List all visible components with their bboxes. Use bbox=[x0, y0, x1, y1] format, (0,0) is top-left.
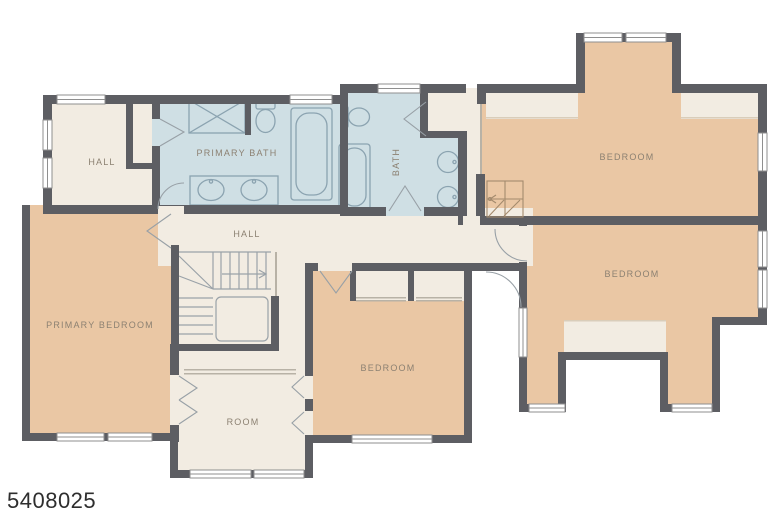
wall bbox=[672, 84, 767, 93]
room-label-bath: BATH bbox=[391, 148, 401, 176]
window-icon bbox=[519, 308, 527, 357]
window-icon bbox=[626, 33, 666, 42]
door-opening bbox=[463, 216, 480, 225]
window-icon bbox=[758, 270, 767, 308]
wall bbox=[22, 205, 30, 441]
closet-floor bbox=[424, 88, 482, 136]
door-opening bbox=[318, 263, 352, 271]
closet-floor bbox=[414, 269, 466, 301]
room-label-primary-bedroom: PRIMARY BEDROOM bbox=[46, 320, 154, 330]
closet-floor bbox=[354, 269, 408, 301]
room-label-bedroom-center: BEDROOM bbox=[361, 363, 416, 373]
door-opening bbox=[386, 207, 424, 216]
door-opening bbox=[305, 411, 313, 435]
window-icon bbox=[57, 95, 105, 104]
window-icon bbox=[254, 470, 304, 478]
sloped-ceiling-zone bbox=[486, 93, 578, 119]
room-label-bedroom-top-right: BEDROOM bbox=[600, 152, 655, 162]
wall bbox=[170, 344, 279, 351]
wall bbox=[350, 271, 356, 301]
window-icon bbox=[378, 84, 420, 93]
door-opening bbox=[152, 119, 160, 146]
door-opening bbox=[519, 226, 527, 262]
flex-room-floor bbox=[175, 350, 311, 474]
wall bbox=[43, 205, 164, 214]
wall bbox=[458, 131, 467, 216]
wall bbox=[558, 352, 566, 412]
door-opening bbox=[170, 375, 179, 425]
wall bbox=[43, 95, 52, 214]
wall bbox=[464, 263, 472, 443]
window-icon bbox=[672, 404, 712, 412]
window-icon bbox=[43, 158, 52, 188]
door-opening bbox=[305, 376, 313, 399]
window-icon bbox=[190, 470, 251, 478]
floorplan-page: HALL PRIMARY BATH BATH BEDROOM BEDROOM H… bbox=[0, 0, 768, 518]
wall bbox=[712, 317, 767, 325]
window-icon bbox=[758, 133, 767, 171]
hall-upper-floor bbox=[46, 100, 158, 208]
wall bbox=[271, 296, 279, 351]
room-label-primary-bath: PRIMARY BATH bbox=[197, 148, 278, 158]
room-label-hall-center: HALL bbox=[233, 229, 260, 239]
door-opening bbox=[171, 213, 179, 245]
window-icon bbox=[43, 120, 52, 150]
wall bbox=[712, 317, 720, 412]
window-icon bbox=[57, 433, 104, 441]
room-label-flex-room: ROOM bbox=[227, 417, 260, 427]
wall bbox=[158, 205, 348, 214]
wall bbox=[660, 352, 668, 412]
wall bbox=[558, 352, 668, 360]
bedroom-right-floor bbox=[521, 220, 765, 410]
sloped-ceiling-zone bbox=[564, 320, 666, 356]
sloped-ceiling-zone bbox=[681, 93, 758, 119]
window-icon bbox=[352, 435, 432, 443]
wall bbox=[420, 131, 466, 138]
door-opening bbox=[158, 206, 184, 214]
wall bbox=[477, 84, 582, 93]
room-label-hall-upper: HALL bbox=[88, 157, 115, 167]
wall bbox=[245, 95, 251, 135]
wall bbox=[420, 84, 428, 138]
room-label-bedroom-right: BEDROOM bbox=[605, 269, 660, 279]
window-icon bbox=[529, 404, 565, 412]
window-icon bbox=[584, 33, 622, 42]
floorplan-svg: HALL PRIMARY BATH BATH BEDROOM BEDROOM H… bbox=[0, 0, 768, 518]
wall bbox=[340, 84, 348, 216]
window-icon bbox=[108, 433, 152, 441]
window-icon bbox=[290, 95, 332, 104]
listing-id: 5408025 bbox=[7, 488, 96, 513]
wall bbox=[408, 271, 414, 301]
wall bbox=[126, 104, 133, 168]
window-icon bbox=[758, 231, 767, 267]
wall bbox=[152, 95, 160, 212]
door-swing-icon bbox=[486, 272, 521, 307]
